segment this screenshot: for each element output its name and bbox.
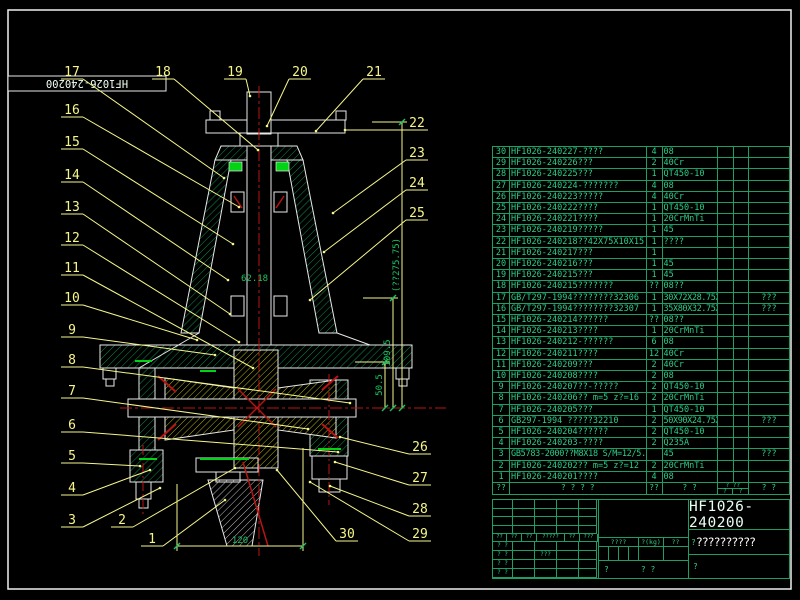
table-row: 4HF1026-240203-????2Q235A (493, 438, 790, 449)
table-cell (748, 236, 789, 247)
table-cell: 40Cr (662, 359, 717, 370)
table-cell: 12 (493, 348, 510, 359)
table-cell (717, 180, 733, 191)
table-cell (748, 158, 789, 169)
table-cell: HF1026-240225??? (510, 169, 646, 180)
table-row: 20HF1026-240216???145 (493, 259, 790, 270)
table-header-row: ??? ? ? ???? ?? ????? ? (493, 483, 790, 495)
svg-text:20: 20 (292, 65, 308, 80)
table-cell (717, 427, 733, 438)
table-cell (748, 270, 789, 281)
table-cell: 18 (493, 281, 510, 292)
table-row: 22HF1026-240218??42X75X10X151???? (493, 236, 790, 247)
table-cell (717, 348, 733, 359)
callout-10: 10 (61, 291, 198, 341)
table-cell: HF1026-240217??? (510, 247, 646, 258)
table-cell (717, 393, 733, 404)
revision-signature-area: ???????????????? ? ?? ????? ?? ? (493, 500, 599, 578)
table-cell: 2 (646, 359, 662, 370)
table-row: 14HF1026-240213????120CrMnTi (493, 326, 790, 337)
svg-text:16: 16 (64, 103, 80, 118)
table-cell (717, 415, 733, 426)
svg-text:8: 8 (68, 353, 76, 368)
table-cell (733, 203, 748, 214)
svg-text:109.5: 109.5 (383, 339, 393, 366)
table-cell: 14 (493, 326, 510, 337)
table-cell (733, 427, 748, 438)
table-cell: 08?? (662, 315, 717, 326)
table-cell (748, 471, 789, 482)
svg-text:27: 27 (412, 471, 428, 486)
svg-text:15: 15 (64, 135, 80, 150)
callout-3: 3 (61, 487, 161, 528)
table-cell (717, 326, 733, 337)
table-cell: QT450-10 (662, 382, 717, 393)
table-cell: HF1026-240219????? (510, 225, 646, 236)
table-cell: HF1026-240201???? (510, 471, 646, 482)
table-cell (748, 427, 789, 438)
signature-grid: ? ?? ????? ?? ? (493, 542, 598, 578)
table-cell (717, 203, 733, 214)
svg-text:10: 10 (64, 291, 80, 306)
revision-cell (535, 509, 557, 518)
table-cell: HF1026-240215??? (510, 270, 646, 281)
revision-header-cell: ????? (537, 534, 565, 541)
svg-text:21: 21 (366, 65, 382, 80)
table-cell: 50X90X24.75X23X19 (662, 415, 717, 426)
table-cell (717, 191, 733, 202)
table-cell: 2 (646, 371, 662, 382)
revision-cell (579, 509, 597, 518)
table-cell: Q235A (662, 438, 717, 449)
table-cell (748, 438, 789, 449)
svg-text:12: 12 (64, 231, 80, 246)
revision-cell (535, 500, 557, 509)
table-cell (733, 259, 748, 270)
table-cell (748, 326, 789, 337)
table-row: 24HF1026-240221????120CrMnTi (493, 214, 790, 225)
revision-cell (579, 500, 597, 509)
scale-label: ?? (664, 538, 687, 546)
table-cell: 2 (646, 382, 662, 393)
table-cell: QT450-10 (662, 169, 717, 180)
svg-text:17: 17 (64, 65, 80, 80)
table-cell (717, 371, 733, 382)
table-cell (717, 460, 733, 471)
table-row: 13HF1026-240212-??????608 (493, 337, 790, 348)
table-cell (717, 382, 733, 393)
revision-grid (493, 500, 598, 534)
revision-cell (513, 509, 535, 518)
table-row: 1HF1026-240201????408 (493, 471, 790, 482)
table-cell: HF1026-240212-?????? (510, 337, 646, 348)
table-cell (733, 393, 748, 404)
callout-16: 16 (61, 103, 240, 208)
table-cell: 45 (662, 259, 717, 270)
table-cell: ?? (646, 281, 662, 292)
table-cell: 25 (493, 203, 510, 214)
signature-cell (557, 569, 579, 578)
parts-table: 30HF1026-240227-????40829HF1026-240226??… (492, 146, 790, 495)
signature-cell (535, 560, 557, 569)
table-cell: 40Cr (662, 348, 717, 359)
table-cell: 10 (493, 371, 510, 382)
table-cell: QT450-10 (662, 427, 717, 438)
table-cell: 4 (646, 191, 662, 202)
table-cell (733, 337, 748, 348)
table-cell: GB5783-2000??M8X18 S/M=12/5.4 (510, 449, 646, 460)
revision-cell (579, 517, 597, 526)
revision-cell (557, 500, 579, 509)
table-cell (748, 281, 789, 292)
callout-22: 22 (344, 116, 428, 131)
table-cell: 30 (493, 147, 510, 158)
table-cell: 16 (493, 303, 510, 314)
table-cell (733, 247, 748, 258)
sheet-info: ? ? ? (599, 561, 688, 578)
table-cell: 28 (493, 169, 510, 180)
svg-text:(??275.75): (??275.75) (392, 238, 402, 292)
table-cell: 11 (493, 359, 510, 370)
table-cell (733, 404, 748, 415)
table-row: 11HF1026-240209???240Cr (493, 359, 790, 370)
revision-cell (579, 526, 597, 535)
svg-text:7: 7 (68, 384, 76, 399)
svg-text:28: 28 (412, 502, 428, 517)
table-cell: 19 (493, 270, 510, 281)
table-cell (733, 348, 748, 359)
table-cell: 26 (493, 191, 510, 202)
table-cell (717, 270, 733, 281)
table-row: 8HF1026-240206?? m=5 z?=16220CrMnTi (493, 393, 790, 404)
svg-text:18: 18 (155, 65, 171, 80)
table-cell (717, 281, 733, 292)
table-cell: 1 (646, 292, 662, 303)
table-cell: 4 (646, 147, 662, 158)
svg-text:13: 13 (64, 200, 80, 215)
table-cell: 1 (646, 214, 662, 225)
table-cell: 9 (493, 382, 510, 393)
table-cell (733, 460, 748, 471)
table-cell: ?? (493, 483, 510, 495)
revision-cell (493, 509, 513, 518)
table-row: 29HF1026-240226???240Cr (493, 158, 790, 169)
table-cell (748, 259, 789, 270)
table-cell (717, 303, 733, 314)
table-cell: 40Cr (662, 191, 717, 202)
sheet-right: ? (693, 562, 698, 571)
title-block: ???????????????? ? ?? ????? ?? ? ???? ?(… (492, 499, 790, 579)
table-cell (717, 247, 733, 258)
revision-header-cell: ?? (522, 534, 537, 541)
table-cell: 2 (646, 415, 662, 426)
table-cell (733, 471, 748, 482)
table-cell: 08 (662, 180, 717, 191)
callout-1: 1 (141, 499, 226, 547)
svg-text:11: 11 (64, 261, 80, 276)
revision-cell (557, 509, 579, 518)
assembly (100, 92, 412, 546)
table-cell: GB297-1994 ?????32210 (510, 415, 646, 426)
table-cell: 08 (662, 371, 717, 382)
table-cell (733, 158, 748, 169)
signature-cell (579, 569, 597, 578)
table-cell: ? ? (662, 483, 717, 495)
table-cell (717, 225, 733, 236)
table-cell: 4 (493, 438, 510, 449)
revision-cell (535, 526, 557, 535)
table-cell: 17 (493, 292, 510, 303)
svg-text:9: 9 (68, 323, 76, 338)
table-cell: ??? (748, 303, 789, 314)
table-cell: 3 (493, 449, 510, 460)
signature-cell: ??? (535, 551, 557, 560)
table-cell: HF1026-240216??? (510, 259, 646, 270)
table-cell: ??? (748, 292, 789, 303)
revision-header-cell: ?? (565, 534, 580, 541)
table-cell (717, 315, 733, 326)
signature-cell (535, 542, 557, 551)
table-cell (733, 214, 748, 225)
revision-cell (513, 500, 535, 509)
table-cell (748, 460, 789, 471)
table-cell (717, 147, 733, 158)
table-cell (748, 225, 789, 236)
table-cell (733, 303, 748, 314)
svg-text:19: 19 (227, 65, 243, 80)
table-cell: 08 (662, 147, 717, 158)
table-cell: 4 (646, 180, 662, 191)
svg-text:50.5: 50.5 (375, 374, 385, 396)
table-row: 5HF1026-240204??????2QT450-10 (493, 427, 790, 438)
table-cell (733, 371, 748, 382)
table-cell: HF1026-240222???? (510, 203, 646, 214)
table-cell: 1 (646, 404, 662, 415)
svg-text:2: 2 (118, 513, 126, 528)
revision-header-cell: ?? (493, 534, 507, 541)
table-row: 10HF1026-240208????208 (493, 371, 790, 382)
table-cell (717, 471, 733, 482)
sheet-left: ? (604, 565, 609, 574)
svg-text:14: 14 (64, 168, 80, 183)
table-cell: 24 (493, 214, 510, 225)
table-cell (717, 359, 733, 370)
table-cell (748, 382, 789, 393)
drawing-id-area: HF1026-240200 ? ?????????? ? (689, 500, 789, 578)
table-cell: 20CrMnTi (662, 393, 717, 404)
table-cell: ?? (646, 315, 662, 326)
table-row: 6GB297-1994 ?????32210250X90X24.75X23X19… (493, 415, 790, 426)
revision-cell (493, 517, 513, 526)
table-row: 12HF1026-240211????1240Cr (493, 348, 790, 359)
table-cell (748, 337, 789, 348)
table-cell (717, 404, 733, 415)
signature-cell (557, 542, 579, 551)
table-row: 7HF1026-240205???1QT450-10 (493, 404, 790, 415)
signature-cell (557, 560, 579, 569)
callout-26: 26 (339, 436, 431, 455)
table-cell: ???? (662, 236, 717, 247)
table-cell: HF1026-240203-???? (510, 438, 646, 449)
table-cell: 30X72X28.75X27X23 (662, 292, 717, 303)
table-cell (748, 180, 789, 191)
table-cell: 13 (493, 337, 510, 348)
table-cell: HF1026-240221???? (510, 214, 646, 225)
callout-15: 15 (61, 135, 234, 245)
svg-text:22: 22 (409, 116, 425, 131)
signature-cell (579, 551, 597, 560)
table-cell (733, 315, 748, 326)
signature-cell (557, 551, 579, 560)
table-cell (733, 169, 748, 180)
table-cell (717, 449, 733, 460)
cad-viewport: HF1026-240200 (0, 0, 800, 600)
table-cell: HF1026-240204?????? (510, 427, 646, 438)
table-cell: 1 (646, 259, 662, 270)
table-cell: 2 (646, 393, 662, 404)
table-cell: 22 (493, 236, 510, 247)
table-cell (733, 236, 748, 247)
table-cell (748, 147, 789, 158)
table-cell: ??? (748, 415, 789, 426)
table-cell (733, 438, 748, 449)
table-cell: HF1026-240224-??????? (510, 180, 646, 191)
table-cell: 23 (493, 225, 510, 236)
table-cell: 6 (493, 415, 510, 426)
properties-area: ???? ?(kg) ?? ? ? ? (599, 500, 689, 578)
table-cell: 40Cr (662, 158, 717, 169)
table-cell (733, 191, 748, 202)
svg-text:5: 5 (68, 449, 76, 464)
table-cell: HF1026-240209??? (510, 359, 646, 370)
table-cell (717, 259, 733, 270)
callout-27: 27 (334, 461, 431, 486)
table-cell: 29 (493, 158, 510, 169)
signature-cell (579, 560, 597, 569)
table-cell: 15 (493, 315, 510, 326)
table-cell (748, 359, 789, 370)
revision-header-cell: ??? (580, 534, 598, 541)
table-cell: 21 (493, 247, 510, 258)
weight-header-cell: ? ???? (717, 483, 748, 495)
weight-label: ?(kg) (639, 538, 664, 546)
table-cell: HF1026-240208???? (510, 371, 646, 382)
name-prefix: ? (691, 538, 695, 547)
table-cell (717, 158, 733, 169)
signature-cell (579, 542, 597, 551)
table-cell: 2 (493, 460, 510, 471)
table-cell (748, 315, 789, 326)
svg-text:24: 24 (409, 176, 425, 191)
table-cell (733, 147, 748, 158)
revision-cell (513, 526, 535, 535)
table-cell: 1 (646, 236, 662, 247)
table-row: 26HF1026-240223?????440Cr (493, 191, 790, 202)
table-cell: 1 (646, 169, 662, 180)
revision-cell (535, 517, 557, 526)
signature-cell (513, 551, 535, 560)
signature-cell: ? ? (493, 551, 513, 560)
corner-label-box: HF1026-240200 (8, 76, 166, 91)
table-cell (717, 214, 733, 225)
table-cell: 5 (493, 427, 510, 438)
product-name: ? ?????????? (689, 530, 789, 555)
table-cell: 12 (646, 348, 662, 359)
table-cell (748, 393, 789, 404)
table-cell: 1 (646, 203, 662, 214)
table-cell: GB/T297-1994????????32307 (510, 303, 646, 314)
table-cell: 1 (493, 471, 510, 482)
table-cell (748, 404, 789, 415)
svg-text:120: 120 (232, 536, 248, 546)
table-cell (733, 415, 748, 426)
table-cell: HF1026-240223????? (510, 191, 646, 202)
table-row: 15HF1026-240214????????08?? (493, 315, 790, 326)
table-cell (733, 326, 748, 337)
table-cell: GB/T297-1994????????32306 (510, 292, 646, 303)
table-row: 21HF1026-240217???1 (493, 247, 790, 258)
table-row: 30HF1026-240227-????408 (493, 147, 790, 158)
table-cell: 1 (646, 270, 662, 281)
table-row: 16GB/T297-1994????????32307135X80X32.75X… (493, 303, 790, 314)
table-cell (717, 236, 733, 247)
table-cell: HF1026-240207??-????? (510, 382, 646, 393)
parts-table-body: 30HF1026-240227-????40829HF1026-240226??… (493, 147, 790, 495)
signature-cell (513, 560, 535, 569)
dimension-note: 62.18 (241, 274, 268, 284)
table-cell: 45 (662, 225, 717, 236)
table-cell (717, 438, 733, 449)
table-cell: 35X80X32.75X31X25 (662, 303, 717, 314)
table-cell: HF1026-240226??? (510, 158, 646, 169)
signature-cell (513, 542, 535, 551)
corner-label: HF1026-240200 (46, 77, 128, 89)
revision-header-cell: ?? (507, 534, 522, 541)
property-labels: ???? ?(kg) ?? (599, 538, 688, 547)
revision-cell (493, 526, 513, 535)
table-cell: 20CrMnTi (662, 214, 717, 225)
table-cell: 8 (493, 393, 510, 404)
sheet-mid: ? ? (641, 565, 655, 574)
table-cell (748, 191, 789, 202)
table-row: 19HF1026-240215???145 (493, 270, 790, 281)
table-cell: HF1026-240218??42X75X10X15 (510, 236, 646, 247)
table-cell (733, 382, 748, 393)
table-cell: 45 (662, 270, 717, 281)
table-cell: HF1026-240215??????? (510, 281, 646, 292)
signature-cell (535, 569, 557, 578)
table-row: 9HF1026-240207??-?????2QT450-10 (493, 382, 790, 393)
table-cell: HF1026-240206?? m=5 z?=16 (510, 393, 646, 404)
table-cell: 2 (646, 460, 662, 471)
callout-20: 20 (266, 65, 311, 127)
svg-text:3: 3 (68, 513, 76, 528)
table-cell: HF1026-240205??? (510, 404, 646, 415)
revision-cell (493, 500, 513, 509)
sheet-right-cell: ? (689, 555, 789, 578)
table-cell (733, 270, 748, 281)
table-row: 17GB/T297-1994????????32306130X72X28.75X… (493, 292, 790, 303)
revision-cell (513, 517, 535, 526)
svg-text:4: 4 (68, 481, 76, 496)
table-cell (748, 371, 789, 382)
drawing-number: HF1026-240200 (689, 500, 789, 530)
name-text: ?????????? (696, 535, 755, 549)
table-cell (748, 348, 789, 359)
table-cell: 08?? (662, 281, 717, 292)
table-cell: HF1026-240211???? (510, 348, 646, 359)
revision-cell (557, 526, 579, 535)
